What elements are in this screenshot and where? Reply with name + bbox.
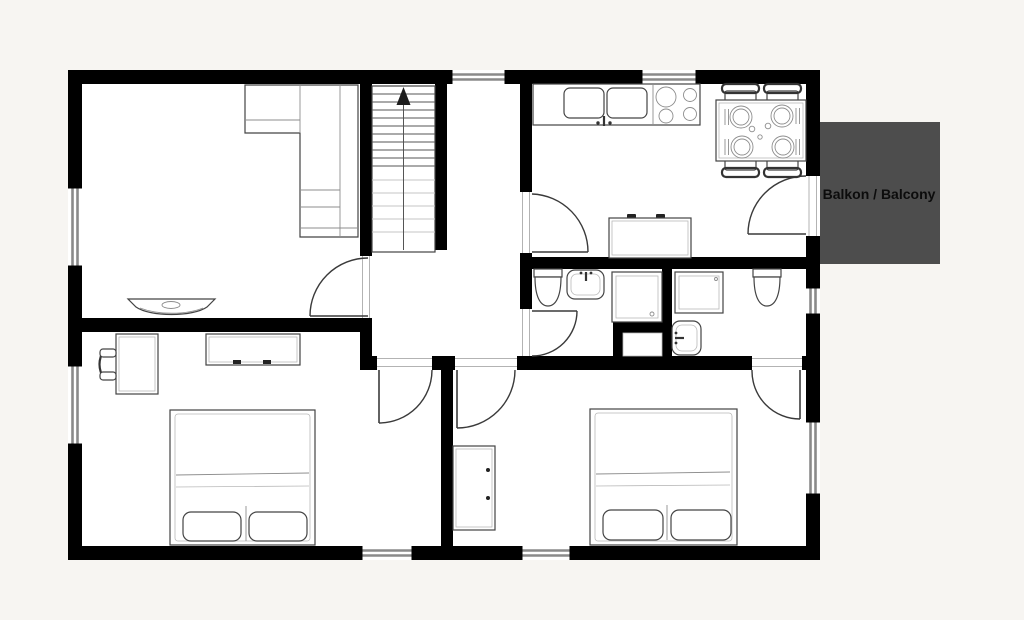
balcony-label: Balkon / Balcony bbox=[823, 186, 936, 202]
sideboard-icon bbox=[206, 334, 300, 365]
pillow-icon bbox=[183, 512, 241, 541]
wardrobe-icon bbox=[453, 446, 495, 530]
window bbox=[360, 546, 414, 560]
window bbox=[806, 286, 820, 316]
window bbox=[806, 420, 820, 496]
washbasin-icon bbox=[567, 270, 604, 299]
shower-icon bbox=[612, 272, 662, 322]
floor-plan: Balkon / Balcony bbox=[0, 0, 1024, 620]
window bbox=[68, 186, 82, 268]
window bbox=[640, 70, 698, 84]
kitchen-sideboard-icon bbox=[609, 214, 691, 258]
desk-icon bbox=[116, 334, 158, 394]
balcony: Balkon / Balcony bbox=[818, 122, 940, 264]
window bbox=[68, 364, 82, 446]
window bbox=[450, 70, 507, 84]
washbasin-icon bbox=[672, 321, 701, 355]
window bbox=[520, 546, 572, 560]
double-bed-icon bbox=[590, 409, 737, 545]
pillow-icon bbox=[603, 510, 663, 540]
kitchen-counter-icon bbox=[533, 84, 700, 126]
pillow-icon bbox=[671, 510, 731, 540]
shower-tray-icon bbox=[675, 272, 723, 313]
pillow-icon bbox=[249, 512, 307, 541]
floor-plan-drawing: Balkon / Balcony bbox=[0, 0, 1024, 620]
double-bed-icon bbox=[170, 410, 315, 545]
staircase bbox=[372, 86, 435, 252]
